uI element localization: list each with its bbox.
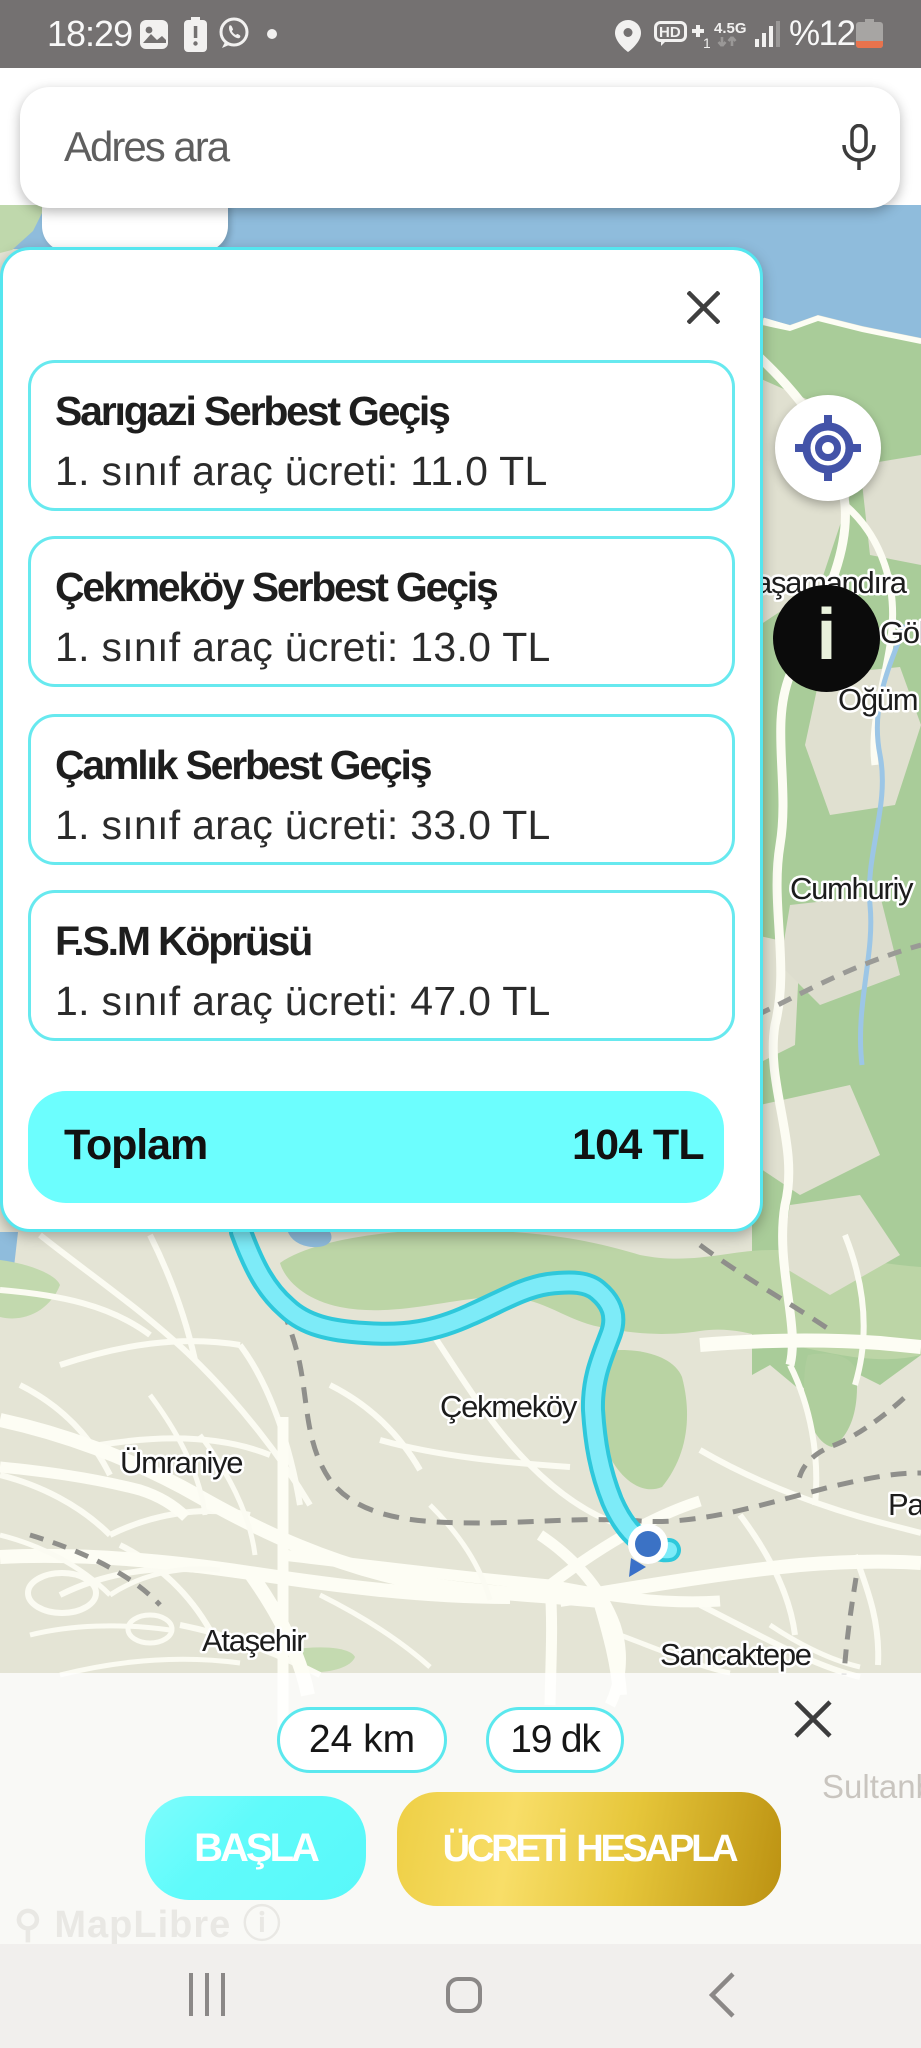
svg-text:Sancaktepe: Sancaktepe [660,1637,811,1672]
svg-text:4.5G: 4.5G [714,20,747,37]
svg-text:Pa: Pa [888,1487,921,1522]
svg-text:HD: HD [659,24,681,41]
svg-text:1: 1 [703,35,710,51]
svg-text:Cumhuriy: Cumhuriy [790,871,914,906]
svg-text:Oğüm: Oğüm [838,682,917,717]
svg-text:Ümraniye: Ümraniye [120,1445,242,1480]
svg-text:Ataşehir: Ataşehir [202,1623,306,1658]
svg-text:Çekmeköy: Çekmeköy [440,1389,578,1424]
svg-text:Göl: Göl [880,615,921,650]
